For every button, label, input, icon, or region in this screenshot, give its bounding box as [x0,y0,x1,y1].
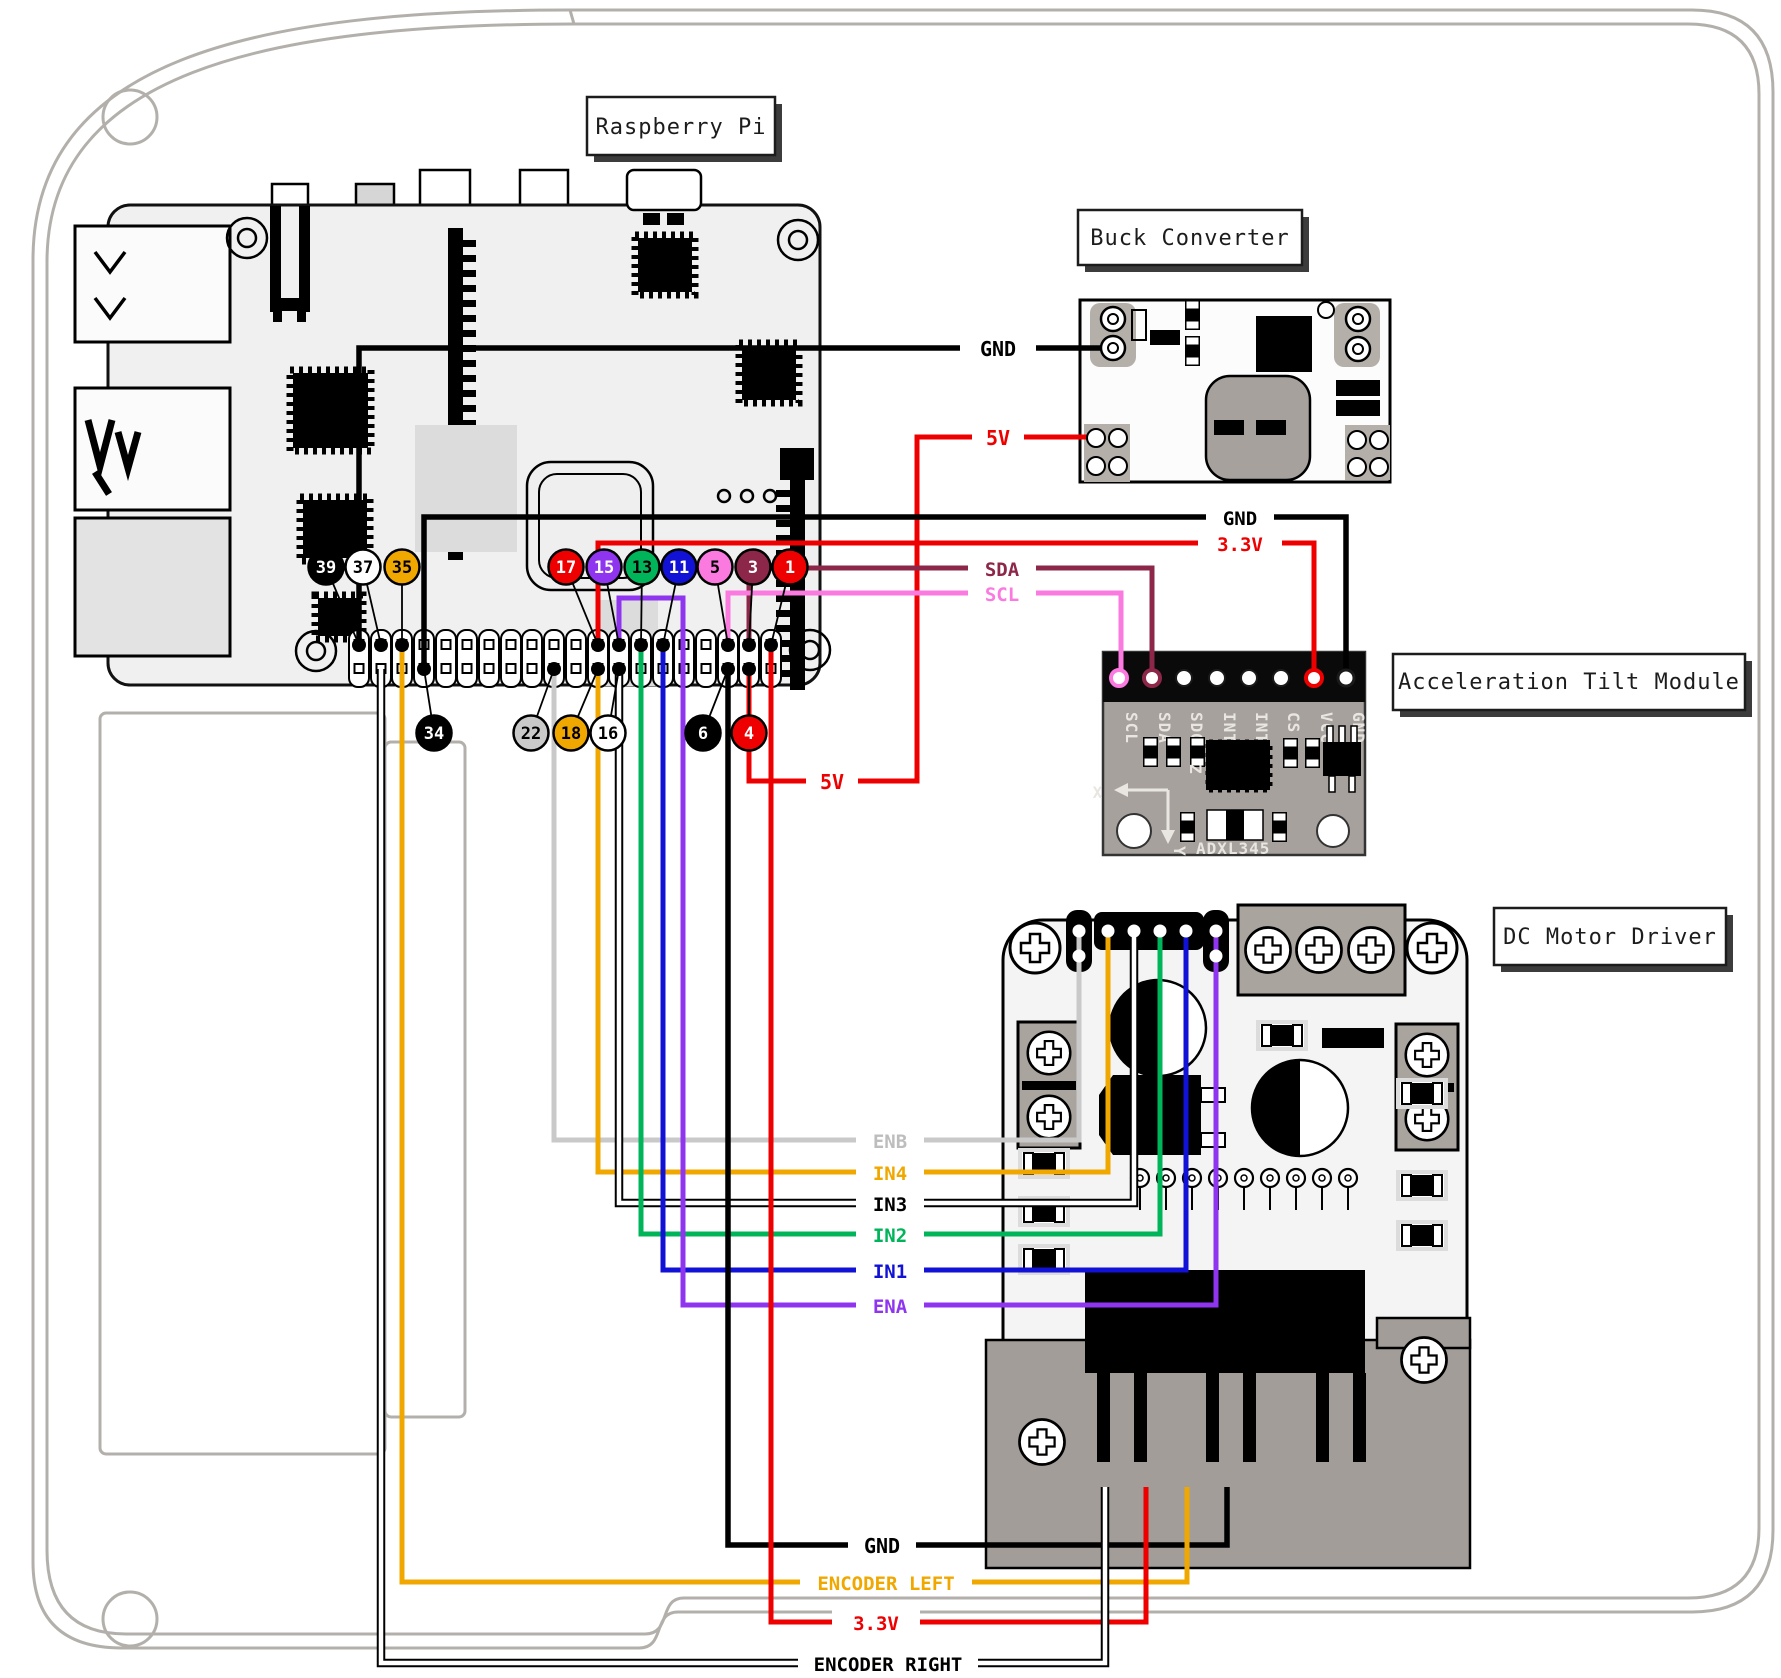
label-5v-buck: 5V [986,426,1010,450]
label-3v3-adxl: 3.3V [1217,534,1263,556]
label-encoder-right: ENCODER RIGHT [814,1654,963,1676]
pi-chip-wifi [739,343,799,403]
pi-chip-usb [635,235,695,295]
pi-micro-hdmi-1 [420,170,470,208]
adxl-axis-z: Z [1186,764,1205,775]
svg-text:22: 22 [521,724,541,744]
label-in2: IN2 [873,1225,907,1247]
pi-ethernet-port [75,518,230,656]
gpio-badge-13: 13 [625,550,660,585]
svg-text:34: 34 [424,724,444,744]
svg-text:17: 17 [556,558,576,578]
adxl-hole-scl [1111,670,1127,686]
adxl-hole-int2 [1209,670,1225,686]
svg-text:16: 16 [598,724,618,744]
raspberry-pi-board [75,170,830,690]
svg-text:18: 18 [561,724,581,744]
svg-text:13: 13 [632,558,652,578]
wiring-diagram: SCL SDA SDO INT2 INT1 CS VCC GND X [0,0,1781,1678]
motor-driver-title-text: DC Motor Driver [1503,925,1717,950]
chassis-hole-bottom-left [103,1592,157,1646]
label-enb: ENB [873,1131,907,1153]
motor-corner-screw [1407,923,1457,973]
adxl-hole-int1 [1241,670,1257,686]
label-ena: ENA [873,1296,908,1318]
label-in1: IN1 [873,1261,907,1283]
label-gnd-bottom: GND [864,1534,900,1558]
motor-corner-screw [1010,923,1060,973]
adxl-pin-label: CS [1284,712,1303,733]
label-3v3-bottom: 3.3V [853,1613,899,1635]
gpio-badge-39: 39 [309,550,344,585]
gpio-badge-5: 5 [698,550,733,585]
wiring-diagram-page: SCL SDA SDO INT2 INT1 CS VCC GND X [0,0,1781,1678]
motor-hole-enb [1073,925,1086,938]
motor-hole-in3 [1128,925,1141,938]
wire-enb [554,669,1079,1140]
gpio-badge-22: 22 [514,716,549,751]
gpio-badge-37: 37 [346,550,381,585]
raspberry-pi-title: Raspberry Pi [587,97,782,162]
svg-text:35: 35 [392,558,412,578]
pi-usb-port-top [75,226,230,342]
pi-micro-hdmi-2 [520,170,568,208]
svg-text:1: 1 [785,558,795,578]
tilt-module-title: Acceleration Tilt Module [1393,654,1752,717]
motor-hole-in2 [1154,925,1167,938]
label-gnd-adxl: GND [1223,508,1257,530]
adxl-mount-hole [1117,814,1151,848]
adxl-chip [1206,740,1270,790]
tilt-module-board: SCL SDA SDO INT2 INT1 CS VCC GND X [1093,652,1368,858]
svg-text:39: 39 [316,558,336,578]
tilt-module-title-text: Acceleration Tilt Module [1398,670,1740,695]
adxl-hole-vcc [1306,670,1322,686]
gpio-badge-16: 16 [591,716,626,751]
pi-usbc-port [627,170,701,210]
gpio-badge-35: 35 [385,550,420,585]
gpio-badge-15: 15 [587,550,622,585]
chassis-cutout-inner [385,742,465,1417]
label-in4: IN4 [873,1163,907,1185]
heatsink-screw [1402,1338,1447,1383]
heatsink-screw [1020,1420,1065,1465]
adxl-axis-x: X [1093,783,1104,802]
gpio-badge-4: 4 [732,716,767,751]
gpio-badge-17: 17 [549,550,584,585]
svg-text:4: 4 [744,724,754,744]
label-in3: IN3 [873,1194,907,1216]
label-encoder-left: ENCODER LEFT [817,1573,954,1595]
buck-converter-board [1080,300,1390,482]
label-5v-mid: 5V [820,770,844,794]
chassis-cutout-left [100,713,385,1454]
buck-converter-title-text: Buck Converter [1090,226,1289,251]
adxl-axis-y: Y [1170,846,1189,857]
label-scl: SCL [985,584,1019,606]
adxl-hole-cs [1273,670,1289,686]
adxl-hole-gnd [1338,670,1354,686]
adxl-hole-sdo [1176,670,1192,686]
chassis-hole-top-left [103,90,157,144]
svg-text:11: 11 [669,558,689,578]
gpio-badge-34: 34 [417,716,452,751]
pi-pad [415,425,517,552]
motor-hole-ena [1210,925,1223,938]
gpio-badge-1: 1 [773,550,808,585]
svg-text:3: 3 [748,558,758,578]
gpio-badge-18: 18 [554,716,589,751]
svg-text:6: 6 [698,724,708,744]
gpio-badge-6: 6 [686,716,721,751]
adxl-pin-label: SCL [1122,712,1141,744]
motor-driver-title: DC Motor Driver [1494,908,1733,972]
buck-ic [1256,316,1312,372]
gpio-badge-11: 11 [662,550,697,585]
svg-text:37: 37 [353,558,373,578]
buck-converter-title: Buck Converter [1078,210,1309,272]
label-sda: SDA [985,559,1020,581]
motor-hole-in4 [1102,925,1115,938]
gpio-badge-3: 3 [736,550,771,585]
motor-hole-in1 [1180,925,1193,938]
adxl-hole-sda [1144,670,1160,686]
adxl-mount-hole [1317,815,1349,847]
raspberry-pi-title-text: Raspberry Pi [596,115,767,140]
svg-text:5: 5 [710,558,720,578]
adxl-chip-label: ADXL345 [1196,839,1270,858]
svg-text:15: 15 [594,558,614,578]
label-gnd-buck: GND [980,337,1016,361]
